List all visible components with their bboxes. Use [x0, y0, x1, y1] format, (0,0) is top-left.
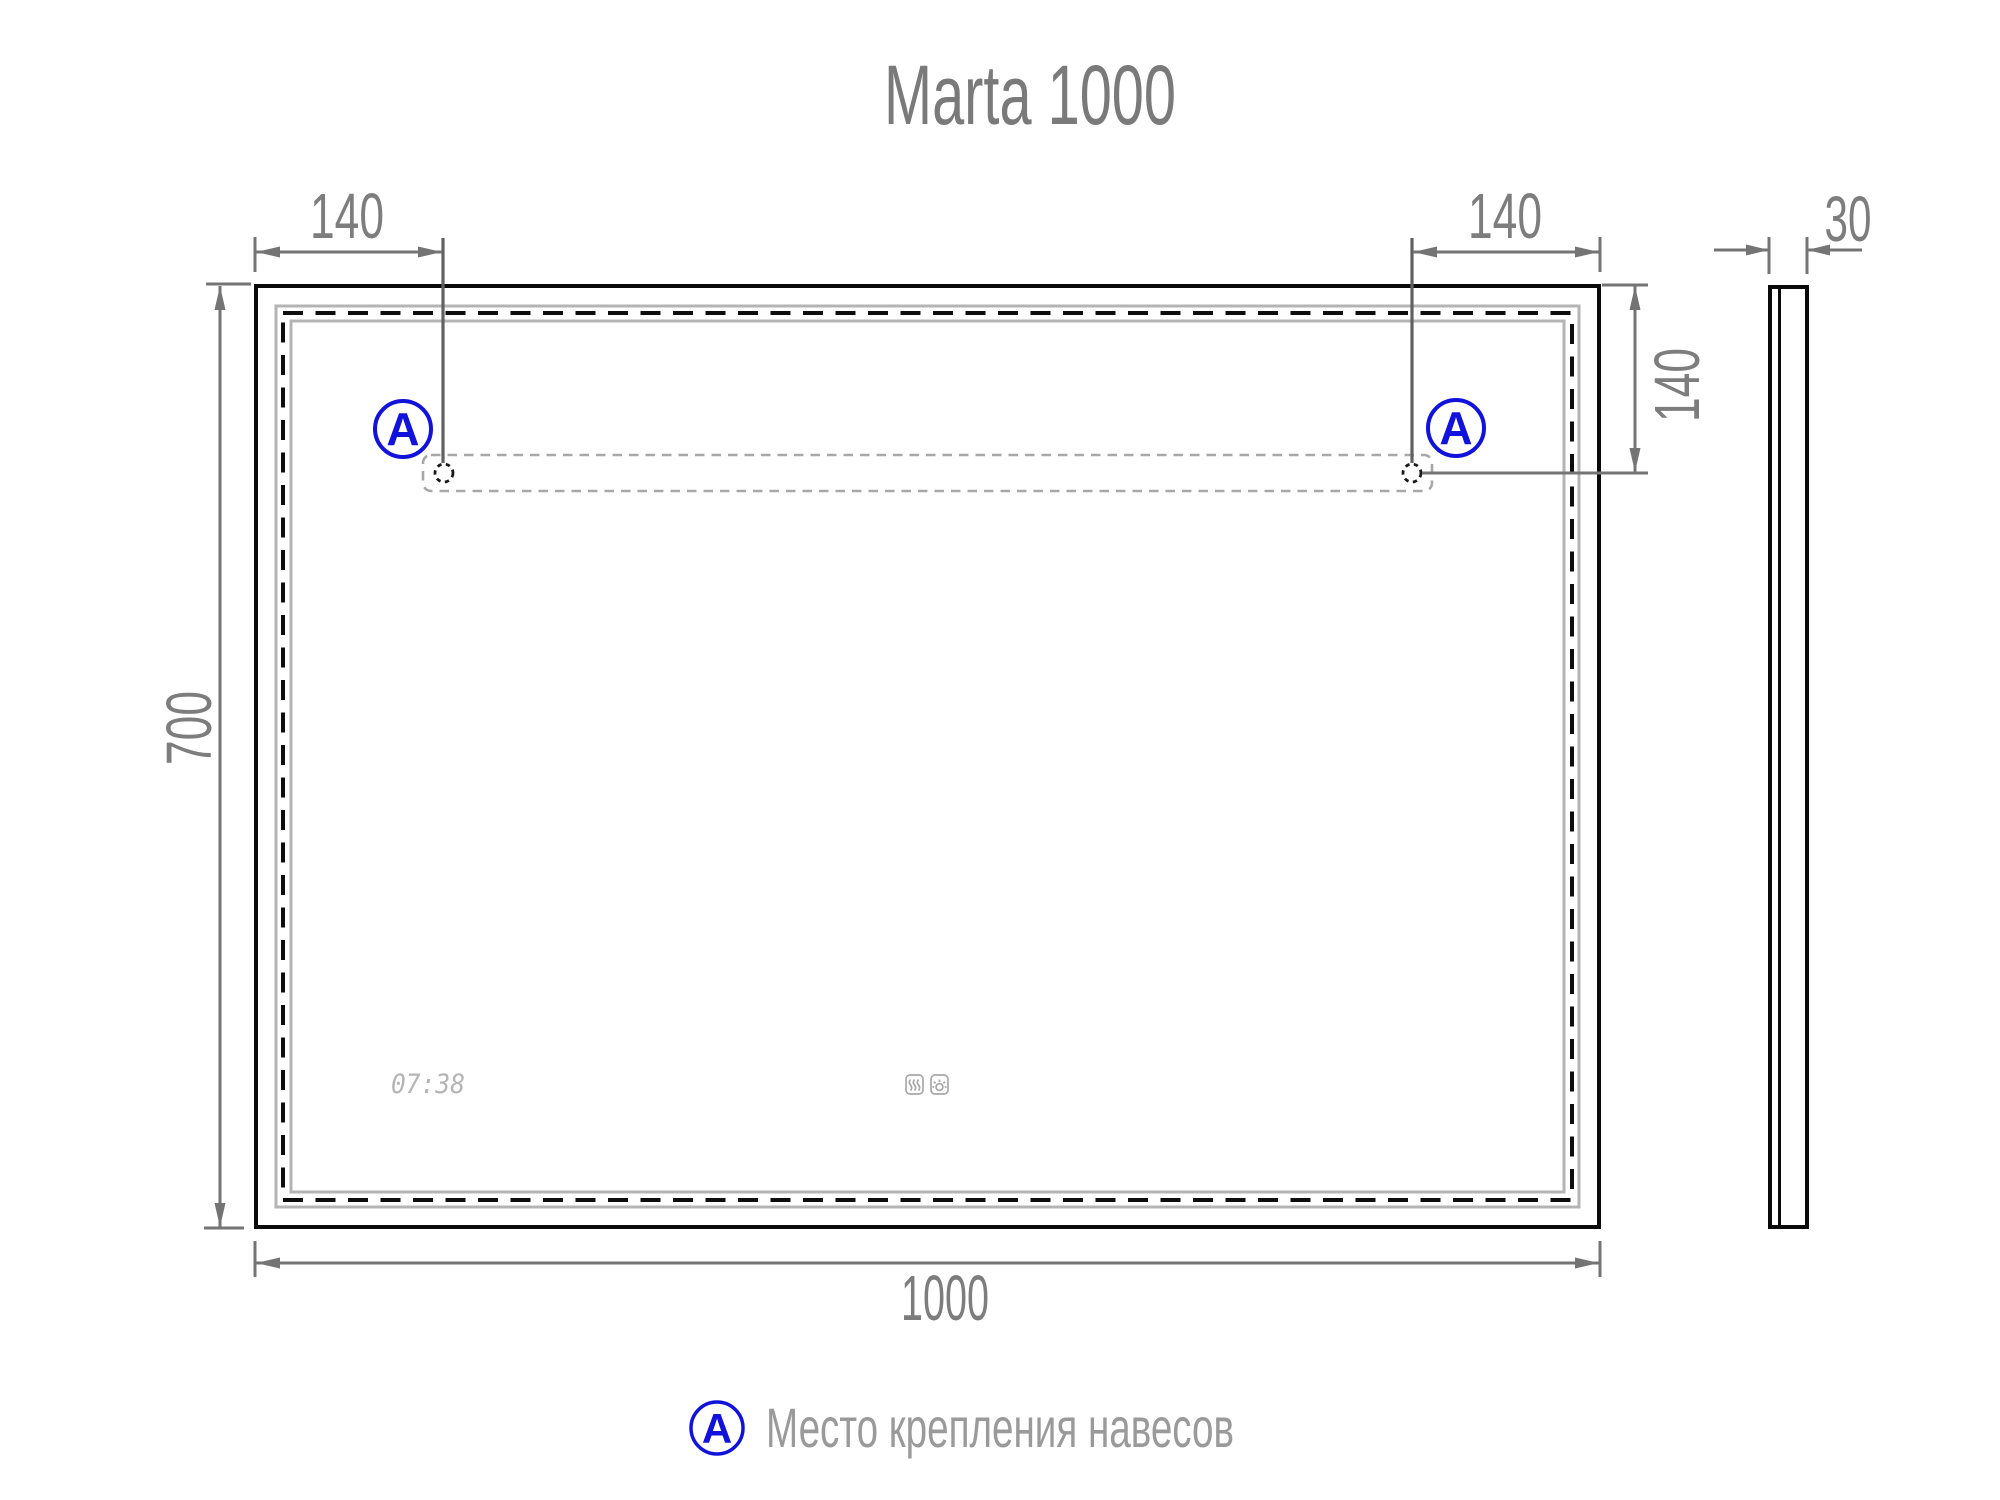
legend-label: Место крепления навесов [766, 1396, 1234, 1459]
dimension-value-140-left: 140 [310, 180, 384, 252]
marker-a-left: A [375, 401, 431, 457]
page-title: Marta 1000 [884, 48, 1176, 142]
dimension-value-30: 30 [1825, 183, 1872, 255]
clock-display: 07:38 [391, 1069, 465, 1100]
dimension-width: 1000 [255, 1241, 1600, 1334]
clock-time: 07:38 [391, 1069, 465, 1100]
dimension-value-1000: 1000 [901, 1262, 989, 1334]
dimension-height: 700 [153, 284, 251, 1228]
dimension-value-140-top: 140 [1641, 348, 1713, 422]
side-view-outline [1770, 287, 1807, 1227]
marker-a-right: A [1428, 400, 1484, 456]
marker-a-left-letter: A [386, 403, 419, 455]
led-strip-dashed-line [283, 313, 1572, 1200]
led-band-inner-line [291, 321, 1564, 1192]
dimension-value-140-right: 140 [1468, 180, 1542, 252]
mounting-hole-left [435, 464, 453, 482]
mounting-bracket-outline [423, 455, 1432, 491]
touch-light-sensor-icon [931, 1075, 948, 1094]
mounting-zone [423, 455, 1432, 491]
led-band-outer-line [276, 306, 1579, 1207]
dimension-thickness: 30 [1714, 183, 1872, 274]
dimension-value-700: 700 [153, 691, 225, 765]
mounting-hole-right [1403, 464, 1421, 482]
marker-a-right-letter: A [1439, 402, 1472, 454]
antifog-heater-icon [906, 1075, 923, 1094]
legend: A Место крепления навесов [691, 1396, 1234, 1459]
legend-marker-letter: A [702, 1405, 732, 1452]
mirror-side-view [1770, 287, 1807, 1227]
technical-drawing-page: Marta 1000 A A 140 140 [0, 0, 2000, 1500]
